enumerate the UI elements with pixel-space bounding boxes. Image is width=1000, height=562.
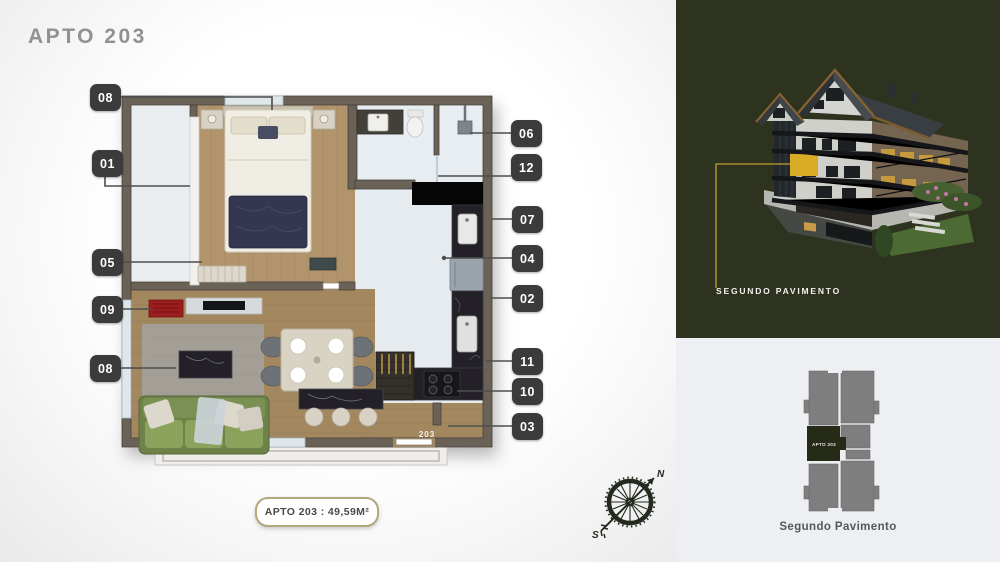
plan-tag-left-2: 01 — [92, 150, 123, 177]
plan-tag-right-8: 03 — [512, 413, 543, 440]
keyplan-panel: APTO 203 Segundo Pavimento — [676, 338, 1000, 562]
plan-tag-right-7: 10 — [512, 378, 543, 405]
sofa-pillow — [236, 406, 263, 432]
accent-pillow — [258, 126, 278, 139]
plan-tag-left-5: 08 — [90, 355, 121, 382]
keyplan-notch — [828, 368, 842, 373]
building-caption: SEGUNDO PAVIMENTO — [716, 286, 841, 296]
plan-tag-right-2: 12 — [511, 154, 542, 181]
sofa-throw — [194, 397, 227, 446]
apto-203-sheet: APTO 203 — [0, 0, 1000, 562]
plan-tag-right-5: 02 — [512, 285, 543, 312]
keyplan-caption: Segundo Pavimento — [676, 521, 1000, 533]
bed-blanket — [229, 196, 307, 248]
island-counter — [299, 389, 383, 409]
chimney — [888, 84, 896, 98]
coffee-table — [179, 351, 232, 378]
toilet — [407, 117, 423, 137]
building-panel: SEGUNDO PAVIMENTO — [676, 0, 1000, 338]
chimney — [912, 94, 918, 104]
bar-stool — [305, 408, 323, 426]
tv — [203, 301, 245, 310]
plan-tag-right-4: 04 — [512, 245, 543, 272]
cooktop — [424, 371, 460, 397]
storefront-light — [804, 222, 816, 232]
area-badge: APTO 203 : 49,59M² — [255, 497, 379, 527]
entry-door-leaf — [396, 439, 432, 445]
wardrobe — [190, 117, 199, 285]
floor-unit-tag: 203 — [419, 430, 435, 439]
bar-stool — [359, 408, 377, 426]
shower-head — [458, 121, 472, 134]
keyplan-highlight-label: APTO 203 — [812, 442, 836, 447]
callout-dot — [442, 256, 446, 260]
kitchen-sink-2 — [457, 316, 477, 352]
bar-stool — [332, 408, 350, 426]
plan-tag-left-4: 09 — [92, 296, 123, 323]
conifer — [875, 225, 893, 257]
plan-tag-left-1: 08 — [90, 84, 121, 111]
window-left — [122, 300, 131, 418]
floorplan-panel: APTO 203 — [0, 0, 676, 562]
compass-icon: N S — [592, 469, 665, 541]
keyplan-notch — [828, 508, 842, 513]
bedroom-bench — [310, 258, 336, 270]
blacked-out-area — [412, 182, 483, 205]
plan-tag-right-3: 07 — [512, 206, 543, 233]
compass-south-label: S — [592, 530, 599, 541]
floor-plan: 203 — [122, 96, 492, 465]
plan-tag-right-1: 06 — [511, 120, 542, 147]
highlighted-unit — [790, 152, 818, 176]
compass-north-label: N — [657, 469, 665, 480]
bedroom-door-leaf — [323, 283, 339, 289]
plan-tag-right-6: 11 — [512, 348, 543, 375]
plan-tag-left-3: 05 — [92, 249, 123, 276]
